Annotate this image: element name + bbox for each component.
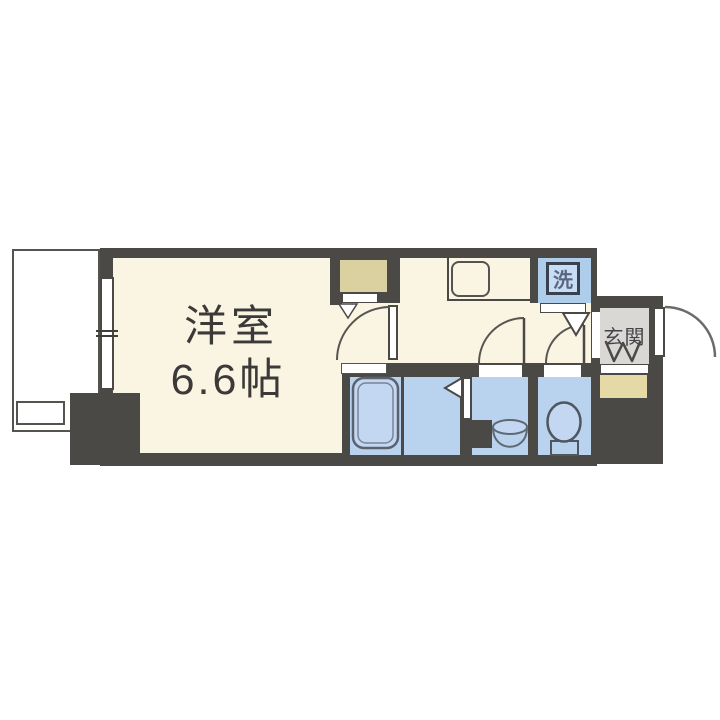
window-tick (96, 330, 118, 332)
washer-threshold (540, 303, 586, 313)
closet (340, 260, 387, 292)
kitchen-sink (451, 261, 490, 297)
bathroom (350, 377, 460, 455)
wall-kitchen-washer (530, 258, 538, 303)
floorplan-canvas: 洗 玄関 洋室 6.6帖 (0, 0, 720, 720)
toilet-door-opening (544, 365, 581, 377)
closet-threshold (342, 293, 378, 303)
toilet-room (538, 377, 591, 455)
washbasin-door-opening (479, 365, 522, 377)
entrance-label: 玄関 (604, 321, 646, 350)
entrance-door-arc (665, 307, 715, 357)
room-name-label: 洋室 (131, 303, 331, 351)
entrance-door-leaf (653, 307, 665, 357)
shoe-cabinet (600, 375, 647, 398)
bath-entry-threshold (341, 363, 387, 374)
entrance-step (601, 365, 648, 373)
window-tick (96, 335, 118, 337)
bathroom-divider (401, 377, 404, 455)
room-size-label: 6.6帖 (128, 356, 328, 404)
hall-genkan-opening (592, 312, 600, 358)
washing-machine: 洗 (546, 262, 580, 295)
wall-jut-washbasin (462, 420, 492, 448)
window (100, 277, 114, 390)
entrance-area: 玄関 (600, 308, 649, 364)
room-door-leaf (388, 305, 398, 360)
washer-label: 洗 (553, 264, 573, 293)
balcony-unit-box (16, 401, 65, 425)
bathroom-door-leaf (462, 377, 472, 420)
